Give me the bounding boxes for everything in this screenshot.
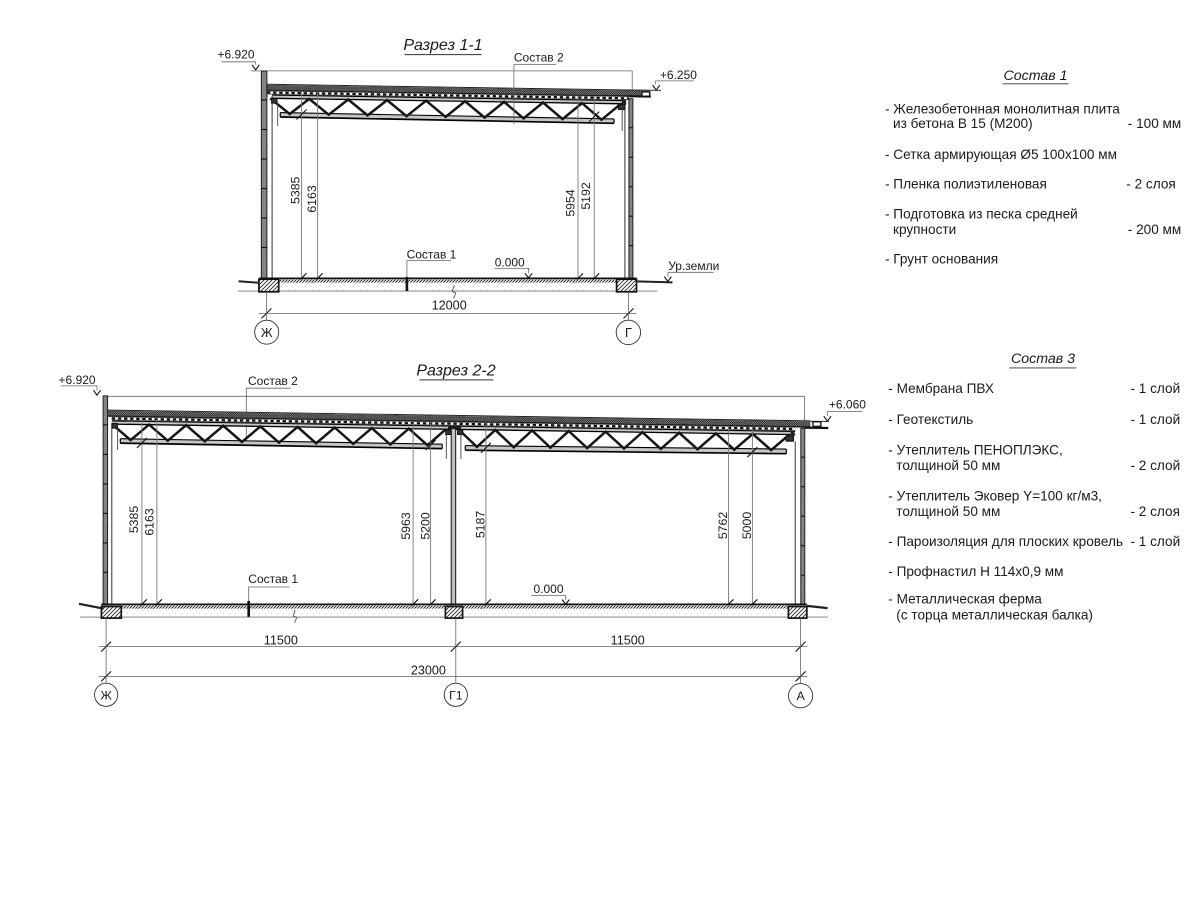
svg-text:- 1 слой: - 1 слой xyxy=(1131,534,1181,549)
svg-text:11500: 11500 xyxy=(611,633,645,647)
svg-text:- Мембрана ПВХ: - Мембрана ПВХ xyxy=(888,381,994,396)
svg-text:толщиной 50 мм: толщиной 50 мм xyxy=(896,504,1000,519)
svg-text:+6.060: +6.060 xyxy=(829,398,866,412)
svg-text:Ур.земли: Ур.земли xyxy=(668,259,719,273)
svg-text:5385: 5385 xyxy=(127,506,141,534)
svg-text:+6.250: +6.250 xyxy=(660,68,697,82)
svg-text:5192: 5192 xyxy=(579,182,593,210)
svg-text:из бетона В 15 (М200): из бетона В 15 (М200) xyxy=(893,116,1033,131)
svg-text:- 1 слой: - 1 слой xyxy=(1131,412,1181,427)
svg-text:толщиной 50 мм: толщиной 50 мм xyxy=(896,458,1000,473)
svg-text:Состав 2: Состав 2 xyxy=(248,374,298,388)
svg-text:5963: 5963 xyxy=(399,512,413,540)
svg-text:(с торца металлическая балка): (с торца металлическая балка) xyxy=(896,608,1093,623)
svg-text:Г1: Г1 xyxy=(449,688,463,702)
svg-text:+6.920: +6.920 xyxy=(217,48,254,62)
svg-text:Состав 1: Состав 1 xyxy=(407,247,457,261)
svg-text:- Утеплитель Эковер Y=100 кг/м: - Утеплитель Эковер Y=100 кг/м3, xyxy=(888,488,1102,503)
svg-text:- 2 слой: - 2 слой xyxy=(1131,458,1181,473)
svg-text:Разрез 1-1: Разрез 1-1 xyxy=(403,37,482,54)
svg-text:Состав 3: Состав 3 xyxy=(1011,351,1075,367)
svg-text:Состав 1: Состав 1 xyxy=(1003,68,1067,84)
svg-text:Состав 1: Состав 1 xyxy=(248,572,298,586)
svg-text:- Геотекстиль: - Геотекстиль xyxy=(888,412,973,427)
svg-text:- 2 слоя: - 2 слоя xyxy=(1126,177,1175,192)
svg-text:крупности: крупности xyxy=(893,222,956,237)
svg-text:23000: 23000 xyxy=(411,663,446,677)
svg-text:Разрез 2-2: Разрез 2-2 xyxy=(416,363,495,380)
svg-text:Состав 2: Состав 2 xyxy=(514,51,564,65)
svg-text:Ж: Ж xyxy=(261,326,273,340)
svg-text:- 1 слой: - 1 слой xyxy=(1131,381,1181,396)
svg-text:6163: 6163 xyxy=(143,508,157,536)
svg-text:- 2 слоя: - 2 слоя xyxy=(1131,504,1180,519)
svg-text:0.000: 0.000 xyxy=(495,256,525,270)
svg-text:- 100 мм: - 100 мм xyxy=(1128,116,1181,131)
svg-text:Ж: Ж xyxy=(100,688,112,702)
svg-text:5000: 5000 xyxy=(740,512,754,540)
svg-text:- Пленка полиэтиленовая: - Пленка полиэтиленовая xyxy=(885,177,1047,192)
svg-text:6163: 6163 xyxy=(305,185,319,213)
svg-text:- Подготовка из песка средней: - Подготовка из песка средней xyxy=(885,206,1078,221)
svg-text:11500: 11500 xyxy=(264,633,298,647)
svg-text:5200: 5200 xyxy=(418,512,432,540)
svg-text:- Металлическая ферма: - Металлическая ферма xyxy=(888,591,1042,606)
svg-text:- Сетка армирующая Ø5 100х100: - Сетка армирующая Ø5 100х100 мм xyxy=(885,147,1117,162)
svg-text:12000: 12000 xyxy=(432,299,467,313)
svg-text:А: А xyxy=(796,689,805,703)
svg-text:5762: 5762 xyxy=(716,512,730,540)
svg-text:- 200 мм: - 200 мм xyxy=(1128,222,1181,237)
svg-text:- Профнастил Н 114х0,9 мм: - Профнастил Н 114х0,9 мм xyxy=(888,564,1063,579)
svg-text:5187: 5187 xyxy=(474,511,488,539)
svg-text:Г: Г xyxy=(625,326,632,340)
svg-text:- Утеплитель ПЕНОПЛЭКС,: - Утеплитель ПЕНОПЛЭКС, xyxy=(888,442,1062,457)
svg-text:+6.920: +6.920 xyxy=(59,373,96,387)
svg-text:5385: 5385 xyxy=(289,176,303,204)
svg-text:0.000: 0.000 xyxy=(534,582,564,596)
svg-text:- Грунт основания: - Грунт основания xyxy=(885,252,998,267)
svg-text:5954: 5954 xyxy=(564,189,578,217)
svg-text:- Пароизоляция для плоских кро: - Пароизоляция для плоских кровель xyxy=(888,534,1123,549)
svg-text:- Железобетонная монолитная п: - Железобетонная монолитная плита xyxy=(885,102,1120,117)
